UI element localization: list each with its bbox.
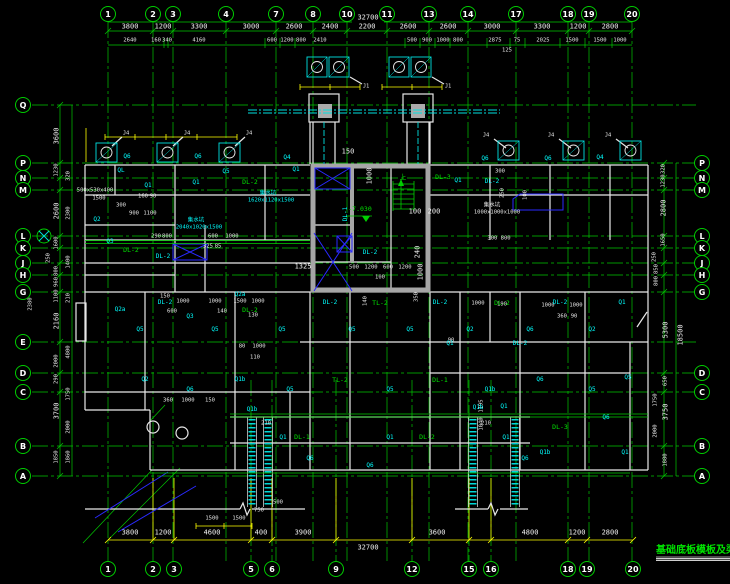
dim-text: 3000 — [484, 24, 501, 31]
dim-text: 1100 — [54, 289, 60, 302]
dim-text: DL-1 — [432, 377, 448, 384]
dim-text: 5300 — [663, 322, 670, 339]
dim-text: Q5 — [278, 327, 285, 333]
grid-bubble-15: 15 — [461, 561, 477, 577]
dim-text: Q5 — [136, 327, 143, 333]
grid-bubble-20: 20 — [624, 6, 640, 22]
dim-text: 75 — [514, 38, 521, 44]
dim-text: 集水坑 — [188, 218, 205, 224]
dim-text: 1850 — [54, 450, 60, 463]
dim-text: 325 — [203, 244, 213, 250]
dim-text: 3000 — [243, 24, 260, 31]
grid-bubble-3: 3 — [165, 6, 181, 22]
dim-text: DL-2 — [485, 179, 499, 185]
column-fill — [411, 104, 425, 118]
dim-text: DL-2 — [363, 250, 377, 256]
dim-text: 3750 — [663, 404, 670, 421]
dim-text: Q1b — [473, 405, 484, 411]
dim-text: Q5 — [588, 387, 595, 393]
dim-text: Q2 — [588, 327, 595, 333]
dim-text: Q1b — [485, 387, 496, 393]
dim-text: 360 — [163, 398, 173, 404]
dim-text: Q1 — [621, 450, 628, 456]
dim-text: 250 — [652, 252, 658, 262]
dim-text: 3300 — [191, 24, 208, 31]
dim-text: 200 — [428, 209, 441, 216]
dim-text: Q1 — [292, 167, 299, 173]
dim-text: 800 — [654, 276, 660, 286]
dim-text: Q5 — [386, 387, 393, 393]
dim-text: 90 — [571, 314, 578, 320]
dim-text: 2600 — [440, 24, 457, 31]
dim-text: 2000 — [66, 420, 72, 433]
dim-text: J4 — [184, 131, 191, 137]
dim-text: 1000 — [208, 299, 221, 305]
dim-text: TL-2 — [332, 377, 348, 384]
grid-bubble-A: A — [694, 468, 710, 484]
dim-text: Q1 — [279, 435, 286, 441]
dim-text: Q3 — [186, 314, 193, 320]
dim-text: 1200 — [570, 24, 587, 31]
dim-text: 1500 — [593, 38, 606, 44]
dim-text: Q2a — [115, 307, 126, 313]
dim-text: 1000 — [367, 168, 374, 185]
dim-text: 18500 — [678, 324, 685, 345]
dim-text: 1200 — [569, 530, 586, 537]
dim-text: 140 — [363, 296, 369, 306]
dim-text: DL-2 — [158, 300, 172, 306]
dim-text: Q1 — [446, 341, 453, 347]
dim-text: 300 800 — [487, 236, 510, 242]
dim-text: DL-2 — [242, 179, 258, 186]
drawing-title: 基础底板模板及梁平面 — [656, 541, 730, 561]
dim-text: 350 — [414, 292, 420, 302]
dim-text: Q6 — [194, 154, 201, 160]
grid-bubble-K: K — [15, 240, 31, 256]
dim-text: 1000 — [471, 301, 484, 307]
dim-text: Q6 — [306, 456, 313, 462]
dim-text: Q1 — [386, 435, 393, 441]
dim-text: 1600 — [54, 236, 60, 249]
dim-text: Q6 — [544, 156, 551, 162]
dim-text: 100 — [409, 209, 422, 216]
dim-text: 2800 — [661, 200, 668, 217]
dim-text: DL-2 — [323, 300, 337, 306]
dim-text: 150 — [342, 149, 355, 156]
elevation-marker — [362, 216, 370, 222]
dim-text: 3600 — [429, 530, 446, 537]
dim-text: 2000 — [653, 424, 659, 437]
dim-text: 1750 — [653, 393, 659, 406]
dim-text: 1000 — [252, 344, 265, 350]
pile-cap-row-left — [96, 143, 240, 162]
grid-bubble-13: 13 — [421, 6, 437, 22]
grid-bubble-3: 3 — [166, 561, 182, 577]
dim-text: J1 — [445, 84, 452, 90]
dim-text: 2000 — [54, 354, 60, 367]
dim-text: 900 — [422, 38, 432, 44]
dim-text: DL-1 — [343, 207, 349, 221]
grid-bubble-17: 17 — [508, 6, 524, 22]
dim-text: 2875 — [488, 38, 501, 44]
dim-text: TL-2 — [372, 300, 388, 307]
dim-text: DL-1 — [294, 434, 310, 441]
dim-text: DL-2 — [494, 300, 510, 307]
pile-cap-group-top — [307, 57, 431, 77]
dim-text: 1230 — [661, 174, 667, 187]
dim-text: 500 — [273, 500, 283, 506]
dim-text: DL-3 — [435, 174, 451, 181]
dim-text: 1200 — [155, 24, 172, 31]
grid-bubble-16: 16 — [483, 561, 499, 577]
grid-bubble-11: 11 — [379, 6, 395, 22]
dim-text: 3600 — [54, 128, 61, 145]
dim-text: Q2 — [141, 377, 148, 383]
grid-bubble-E: E — [15, 334, 31, 350]
grid-bubble-1: 1 — [100, 6, 116, 22]
grid-bubble-H: H — [15, 267, 31, 283]
grid-bubble-4: 4 — [218, 6, 234, 22]
dim-text: 300 — [495, 169, 505, 175]
dim-text: 2040x1020x1500 — [176, 225, 222, 231]
cad-drawing-canvas: 3270038001200330030002600240022002600260… — [0, 0, 730, 584]
grid-bubble-5: 5 — [243, 561, 259, 577]
dim-text: 1500 — [233, 299, 246, 305]
dim-text: 2640 — [123, 38, 136, 44]
dim-text: Q5 — [222, 169, 229, 175]
pile-caps-and-cyan — [37, 57, 641, 506]
dim-text: Q2a — [235, 292, 246, 298]
dim-text: 1200 — [364, 265, 377, 271]
dim-text: 1000x1000x1000 — [474, 210, 520, 216]
dim-text: Q5 — [348, 327, 355, 333]
dim-text: Q6 — [186, 387, 193, 393]
grid-bubble-18: 18 — [560, 561, 576, 577]
dim-text: 600 — [267, 38, 277, 44]
dim-text: Q1 — [454, 178, 461, 184]
dim-text: 3900 — [295, 530, 312, 537]
dim-text: DL-2 — [433, 300, 447, 306]
dim-text: J4 — [246, 131, 253, 137]
dim-text: 750 — [254, 508, 264, 514]
dim-text: 1000 — [418, 264, 425, 281]
grid-bubble-B: B — [694, 438, 710, 454]
dim-text: 2800 — [602, 530, 619, 537]
dim-text: -7.030 — [348, 206, 371, 213]
dim-text: DL-3 — [552, 424, 568, 431]
dim-text: Q5 — [211, 327, 218, 333]
dim-text: 320 — [661, 164, 667, 174]
dim-text: J4 — [483, 133, 490, 139]
blue-pits — [95, 168, 563, 532]
dim-text: Q4 — [283, 155, 290, 161]
dim-text: Q5 — [406, 327, 413, 333]
dim-text: 100 — [523, 190, 529, 200]
grid-bubble-7: 7 — [268, 6, 284, 22]
dim-text: 3700 — [54, 403, 61, 420]
grid-bubble-K: K — [694, 240, 710, 256]
dim-text: 1000 — [436, 38, 449, 44]
grid-bubble-D: D — [15, 365, 31, 381]
dim-text: J4 — [548, 133, 555, 139]
dim-text: 1000 — [181, 398, 194, 404]
dim-text: 集水坑 — [484, 203, 501, 209]
dim-text: Q6 — [366, 463, 373, 469]
dim-text: 1750 — [66, 387, 72, 400]
dim-text: Q5 — [286, 387, 293, 393]
dim-text: Q1b — [235, 377, 246, 383]
dim-text: 1500 — [232, 516, 245, 522]
dim-text: 130 — [248, 313, 258, 319]
dim-text: 80 — [239, 344, 246, 350]
dim-text: 400 — [255, 530, 268, 537]
dim-text: 960 — [54, 277, 60, 287]
dim-text: 2380 — [28, 297, 34, 310]
dim-text: 1200 — [280, 38, 293, 44]
dim-text: 800 — [453, 38, 463, 44]
dim-text: 1500 — [565, 38, 578, 44]
dim-text: J1 — [363, 84, 370, 90]
dim-text: 1200 — [155, 530, 172, 537]
dim-text: 1200 — [398, 265, 411, 271]
dim-text: 210 — [66, 293, 72, 303]
dim-text: 1620x1120x1500 — [248, 198, 294, 204]
dim-text: 210 — [481, 421, 491, 427]
grid-bubble-10: 10 — [339, 6, 355, 22]
dim-text: 4800 — [522, 530, 539, 537]
dim-text: Q1 — [144, 183, 151, 189]
dim-text: 2600 — [286, 24, 303, 31]
dim-text: 1400 — [66, 255, 72, 268]
dim-text: Q6 — [521, 456, 528, 462]
dim-text: 110 — [250, 355, 260, 361]
dim-text: 32700 — [357, 15, 378, 22]
grid-bubble-A: A — [15, 468, 31, 484]
dim-text: 1880 — [663, 453, 669, 466]
dim-text: 集水坑 — [260, 191, 277, 197]
grid-bubble-M: M — [15, 182, 31, 198]
dim-text: 2300 — [66, 206, 72, 219]
grid-bubble-H: H — [694, 267, 710, 283]
dim-text: 800 — [296, 38, 306, 44]
column-fill — [318, 104, 332, 118]
dim-text: 1000 — [176, 299, 189, 305]
dim-text: 1000 — [569, 303, 582, 309]
grid-bubble-14: 14 — [460, 6, 476, 22]
dim-text: 2410 — [313, 38, 326, 44]
grid-bubble-18: 18 — [560, 6, 576, 22]
hatched-wall-sections — [252, 419, 515, 506]
dim-text: 3300 — [534, 24, 551, 31]
dim-text: 1000 — [225, 234, 238, 240]
grid-bubble-G: G — [15, 284, 31, 300]
dim-text: 85 — [215, 244, 222, 250]
dim-text: J4 — [605, 133, 612, 139]
grid-bubble-B: B — [15, 438, 31, 454]
dim-text: 650 — [663, 376, 669, 386]
grid-bubble-8: 8 — [305, 6, 321, 22]
dim-text: 100 — [375, 275, 385, 281]
grid-bubble-P: P — [694, 155, 710, 171]
dim-text: 300 — [116, 203, 126, 209]
dim-text: 1860 — [66, 450, 72, 463]
dim-text: Q1b — [540, 450, 551, 456]
dim-text: Q2 — [466, 327, 473, 333]
dim-text: Q6 — [123, 154, 130, 160]
dim-text: DL-2 — [513, 341, 527, 347]
dim-text: 600 — [208, 234, 218, 240]
dim-text: 1650 — [661, 233, 667, 246]
dim-text: 2025 — [536, 38, 549, 44]
dim-text: 1325 — [295, 264, 312, 271]
dim-text: 2600 — [54, 203, 61, 220]
grid-bubble-20: 20 — [625, 561, 641, 577]
dim-text: Q1 — [502, 435, 509, 441]
dim-text: 2600 — [400, 24, 417, 31]
dim-text: 160 — [151, 38, 161, 44]
dim-text: 2200 — [359, 24, 376, 31]
dim-text: 290 — [54, 374, 60, 384]
dim-text: Q1 — [192, 180, 199, 186]
dim-text: Q1b — [247, 407, 258, 413]
dim-text: DL-2 — [419, 434, 435, 441]
grid-bubble-2: 2 — [145, 561, 161, 577]
dim-text: 1230 — [54, 163, 60, 176]
dim-text: 1000 — [613, 38, 626, 44]
grid-bubble-12: 12 — [404, 561, 420, 577]
dim-text: 240 — [415, 246, 422, 259]
dim-text: Q6 — [481, 156, 488, 162]
dim-text: 上 — [400, 174, 407, 181]
dim-text: DL-2 — [123, 247, 139, 254]
dim-text: 160 — [138, 194, 148, 200]
dim-text: 360 — [557, 314, 567, 320]
dim-text: 320 — [66, 171, 72, 181]
grid-bubble-2: 2 — [145, 6, 161, 22]
dim-text: 90 — [150, 194, 157, 200]
dim-text: DL-2 — [156, 254, 170, 260]
grid-bubble-19: 19 — [579, 561, 595, 577]
dim-text: 340 — [162, 38, 172, 44]
dim-text: 1500 — [92, 196, 105, 202]
stair-symbol — [393, 179, 414, 211]
dim-text: Q1 — [618, 300, 625, 306]
dim-text: 900 — [129, 211, 139, 217]
pile-cap-row-right — [498, 141, 641, 160]
grid-bubble-G: G — [694, 284, 710, 300]
dim-text: 150 — [205, 398, 215, 404]
grid-bubble-C: C — [15, 384, 31, 400]
grid-bubble-9: 9 — [328, 561, 344, 577]
dim-text: 4600 — [204, 530, 221, 537]
dim-text: 250 — [500, 188, 506, 198]
dim-text: 2400 — [322, 24, 339, 31]
dim-text: 2800 — [602, 24, 619, 31]
grid-bubble-D: D — [694, 365, 710, 381]
dim-text: 32700 — [357, 545, 378, 552]
dim-text: Q6 — [526, 327, 533, 333]
dim-text: Q2 — [93, 217, 100, 223]
dim-text: DL-2 — [553, 300, 567, 306]
dim-text: DL-2 — [242, 307, 258, 314]
dim-text: 3800 — [122, 530, 139, 537]
dim-text: 140 — [217, 309, 227, 315]
dim-text: Q4 — [596, 155, 603, 161]
dim-text: 600 — [383, 265, 393, 271]
dim-text: Q3 — [106, 239, 113, 245]
dim-text: 800 — [54, 266, 60, 276]
dim-text: 4800 — [66, 345, 72, 358]
dim-text: QL — [117, 168, 124, 174]
dim-text: Q1 — [500, 404, 507, 410]
dim-text: 3800 — [122, 24, 139, 31]
dim-text: 4160 — [192, 38, 205, 44]
dim-text: J4 — [123, 131, 130, 137]
dim-text: 600 — [167, 309, 177, 315]
grid-bubble-Q: Q — [15, 97, 31, 113]
grid-bubble-19: 19 — [581, 6, 597, 22]
dim-text: 850 — [654, 264, 660, 274]
dim-text: 290 — [151, 234, 161, 240]
dim-text: 1500 — [205, 516, 218, 522]
dim-text: 2160 — [54, 313, 61, 330]
dim-text: 250 — [46, 253, 52, 263]
grid-bubble-M: M — [694, 182, 710, 198]
dim-text: 500 — [349, 265, 359, 271]
dim-text: Q6 — [602, 415, 609, 421]
dim-text: 500x530x400 — [77, 188, 113, 194]
grid-bubble-C: C — [694, 384, 710, 400]
dim-text: 800 — [162, 234, 172, 240]
grid-bubble-1: 1 — [100, 561, 116, 577]
dim-text: 500 — [407, 38, 417, 44]
grid-bubble-P: P — [15, 155, 31, 171]
dim-text: 210 — [261, 421, 271, 427]
dim-text: 125 — [502, 48, 512, 54]
dim-text: Q6 — [536, 377, 543, 383]
grid-bubble-6: 6 — [264, 561, 280, 577]
dim-text: Q5 — [624, 375, 631, 381]
dim-text: 1000 — [251, 299, 264, 305]
dim-text: 1100 — [143, 211, 156, 217]
